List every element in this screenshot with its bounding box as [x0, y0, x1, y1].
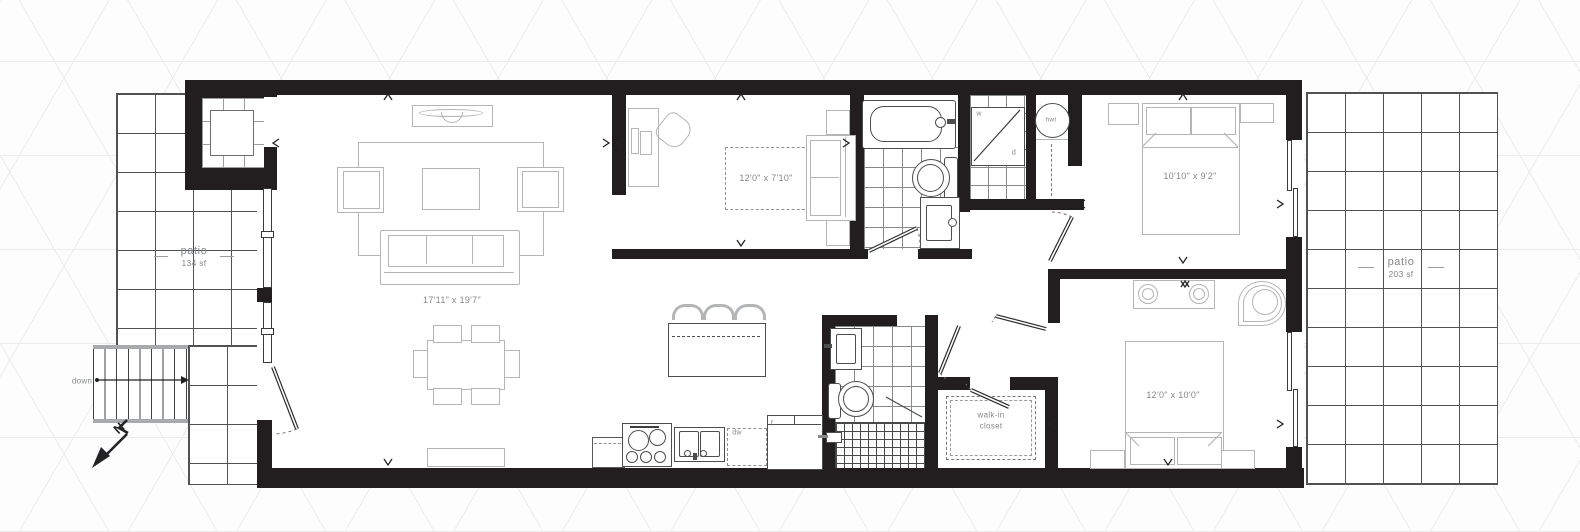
dining-chair [504, 350, 520, 378]
pillow [1130, 437, 1175, 465]
burner [654, 451, 666, 463]
sofa-cushion-divider [426, 236, 427, 264]
sofa-seat [388, 235, 504, 267]
dryer-label: d [1012, 150, 1016, 157]
burner [640, 451, 652, 463]
bar-stool [703, 304, 735, 320]
daybed-back [845, 137, 846, 217]
bar-stool [672, 304, 704, 320]
nightstand [1090, 450, 1125, 469]
desk-computer [640, 131, 652, 155]
walkin-closet-label-line2: closet [980, 422, 1003, 431]
sink-faucet-handle [684, 450, 691, 457]
shower-control [826, 432, 842, 443]
bath2-faucet [824, 344, 832, 348]
armchair-left-seat [343, 171, 380, 209]
nightstand [1108, 103, 1139, 125]
daybed-cushions [810, 140, 841, 216]
island-counter-dashed [672, 336, 760, 337]
label-dash [154, 256, 168, 257]
toilet-seat [917, 164, 944, 192]
corner-shower-base [1252, 289, 1278, 315]
wall-top [185, 80, 1302, 95]
wall-bottom [257, 468, 1304, 488]
living-room-dimensions: 17'11" x 19'7" [423, 295, 481, 305]
master-sliding-door-panel-b [1293, 389, 1298, 447]
sofa-cushion-divider [472, 236, 473, 264]
wall-right-a [1286, 94, 1302, 140]
side-table [826, 220, 850, 246]
desk-monitor [631, 128, 639, 154]
patio-left-tiles-lower [188, 345, 259, 485]
wall-den-bottom [612, 249, 868, 259]
closet-rod-dashed [1051, 144, 1052, 196]
wall-laundry-bottom [958, 199, 1084, 210]
mechanical-unit [210, 110, 254, 156]
tub-drain [935, 117, 946, 128]
patio-right-area: 203 sf [1389, 269, 1414, 279]
living-window-sash [261, 231, 274, 238]
coffee-table [422, 168, 480, 210]
burner [649, 429, 666, 446]
entry-niche-opening [264, 97, 277, 147]
floor-plan: patio 134 sf patio 203 sf 17'11" x 19'7"… [0, 0, 1580, 532]
hot-water-tank-label: hwt [1045, 117, 1056, 124]
bath1-faucet [948, 218, 957, 227]
wall-left-mid-stub [257, 288, 272, 302]
wall-right-c [1286, 447, 1302, 488]
master-sliding-door-panel-a [1287, 332, 1292, 391]
vanity-sink-inner [1193, 288, 1205, 300]
wall-hwt-right [1068, 94, 1082, 166]
wall-walkin-right [1045, 390, 1058, 468]
bedroom1-dimensions: 10'10" x 9'2" [1163, 171, 1216, 181]
wall-bath1-bottom [918, 249, 972, 259]
bath2-sink [836, 334, 856, 364]
label-dash [1428, 267, 1444, 268]
pillow [1177, 437, 1222, 465]
bar-stool [734, 304, 766, 320]
patio-right-label: patio [1388, 256, 1415, 268]
fridge-divider [794, 415, 795, 424]
dining-chair [433, 388, 462, 405]
range-control-bar [630, 426, 659, 428]
label-dash [220, 256, 234, 257]
nightstand [1221, 450, 1255, 469]
dining-chair [413, 350, 428, 378]
vanity-sink-inner [1142, 288, 1154, 300]
sofa-front-rail [384, 272, 514, 273]
tub-faucet [947, 119, 955, 124]
dishwasher-label: dw [732, 430, 742, 437]
wall-bath2-top [822, 315, 897, 326]
toilet-seat [843, 386, 869, 412]
wall-laundry-right [1026, 94, 1036, 210]
sink-faucet-handle [700, 450, 707, 457]
fridge-door-line [767, 424, 821, 425]
bedroom1-sliding-door-panel-a [1287, 140, 1292, 191]
living-window [263, 188, 272, 288]
armchair-right-seat [522, 171, 559, 208]
bedroom1-sliding-door-panel-b [1293, 188, 1298, 237]
wall-walkin-top-right [1010, 377, 1058, 390]
kitchen-counter [592, 437, 625, 468]
daybed-cushion-divider [810, 177, 839, 178]
dining-chair [471, 388, 500, 405]
pillow [1191, 107, 1236, 135]
hwt-shelf-line [1036, 139, 1068, 140]
bed-sheet-line [1142, 147, 1238, 148]
patio-left-area: 134 sf [182, 258, 207, 268]
wall-den-left [612, 94, 626, 195]
burner [626, 451, 638, 463]
washer-label: w [976, 111, 981, 118]
fridge-label: f [771, 421, 773, 428]
den-dimensions: 12'0" x 7'10" [739, 173, 792, 183]
bedroom2-dimensions: 12'0" x 10'0" [1146, 390, 1199, 400]
side-table [826, 110, 850, 135]
stairs [93, 345, 188, 423]
stairs-down-label: down [72, 377, 92, 386]
sideboard [427, 448, 505, 467]
nightstand [1240, 103, 1274, 123]
bed-sheet-line [1125, 432, 1222, 433]
sink-faucet-spout [693, 453, 697, 460]
wall-bath2-right [925, 315, 938, 468]
wall-master-entry-stub [1048, 269, 1060, 323]
dining-table [427, 340, 505, 390]
dining-chair [471, 325, 500, 343]
pillow [1146, 107, 1191, 135]
wall-bath1-right [958, 94, 970, 212]
patio-left-label: patio [181, 245, 208, 257]
counter-dashed-edge [594, 443, 621, 444]
shower-mosaic-tiles [835, 422, 927, 470]
patio-right-tiles [1306, 92, 1498, 485]
wall-walkin-top-left [925, 377, 970, 390]
wall-right-b [1286, 237, 1302, 332]
shower-arm [818, 435, 828, 438]
dining-chair [433, 325, 462, 343]
kitchen-island [668, 323, 766, 377]
walkin-closet-label-line1: walk-in [978, 411, 1005, 420]
living-window2-sash [261, 328, 274, 335]
wall-bedroom-divider [1048, 269, 1286, 279]
bathtub-basin [870, 106, 942, 142]
label-dash [1358, 267, 1374, 268]
burner [628, 430, 649, 451]
